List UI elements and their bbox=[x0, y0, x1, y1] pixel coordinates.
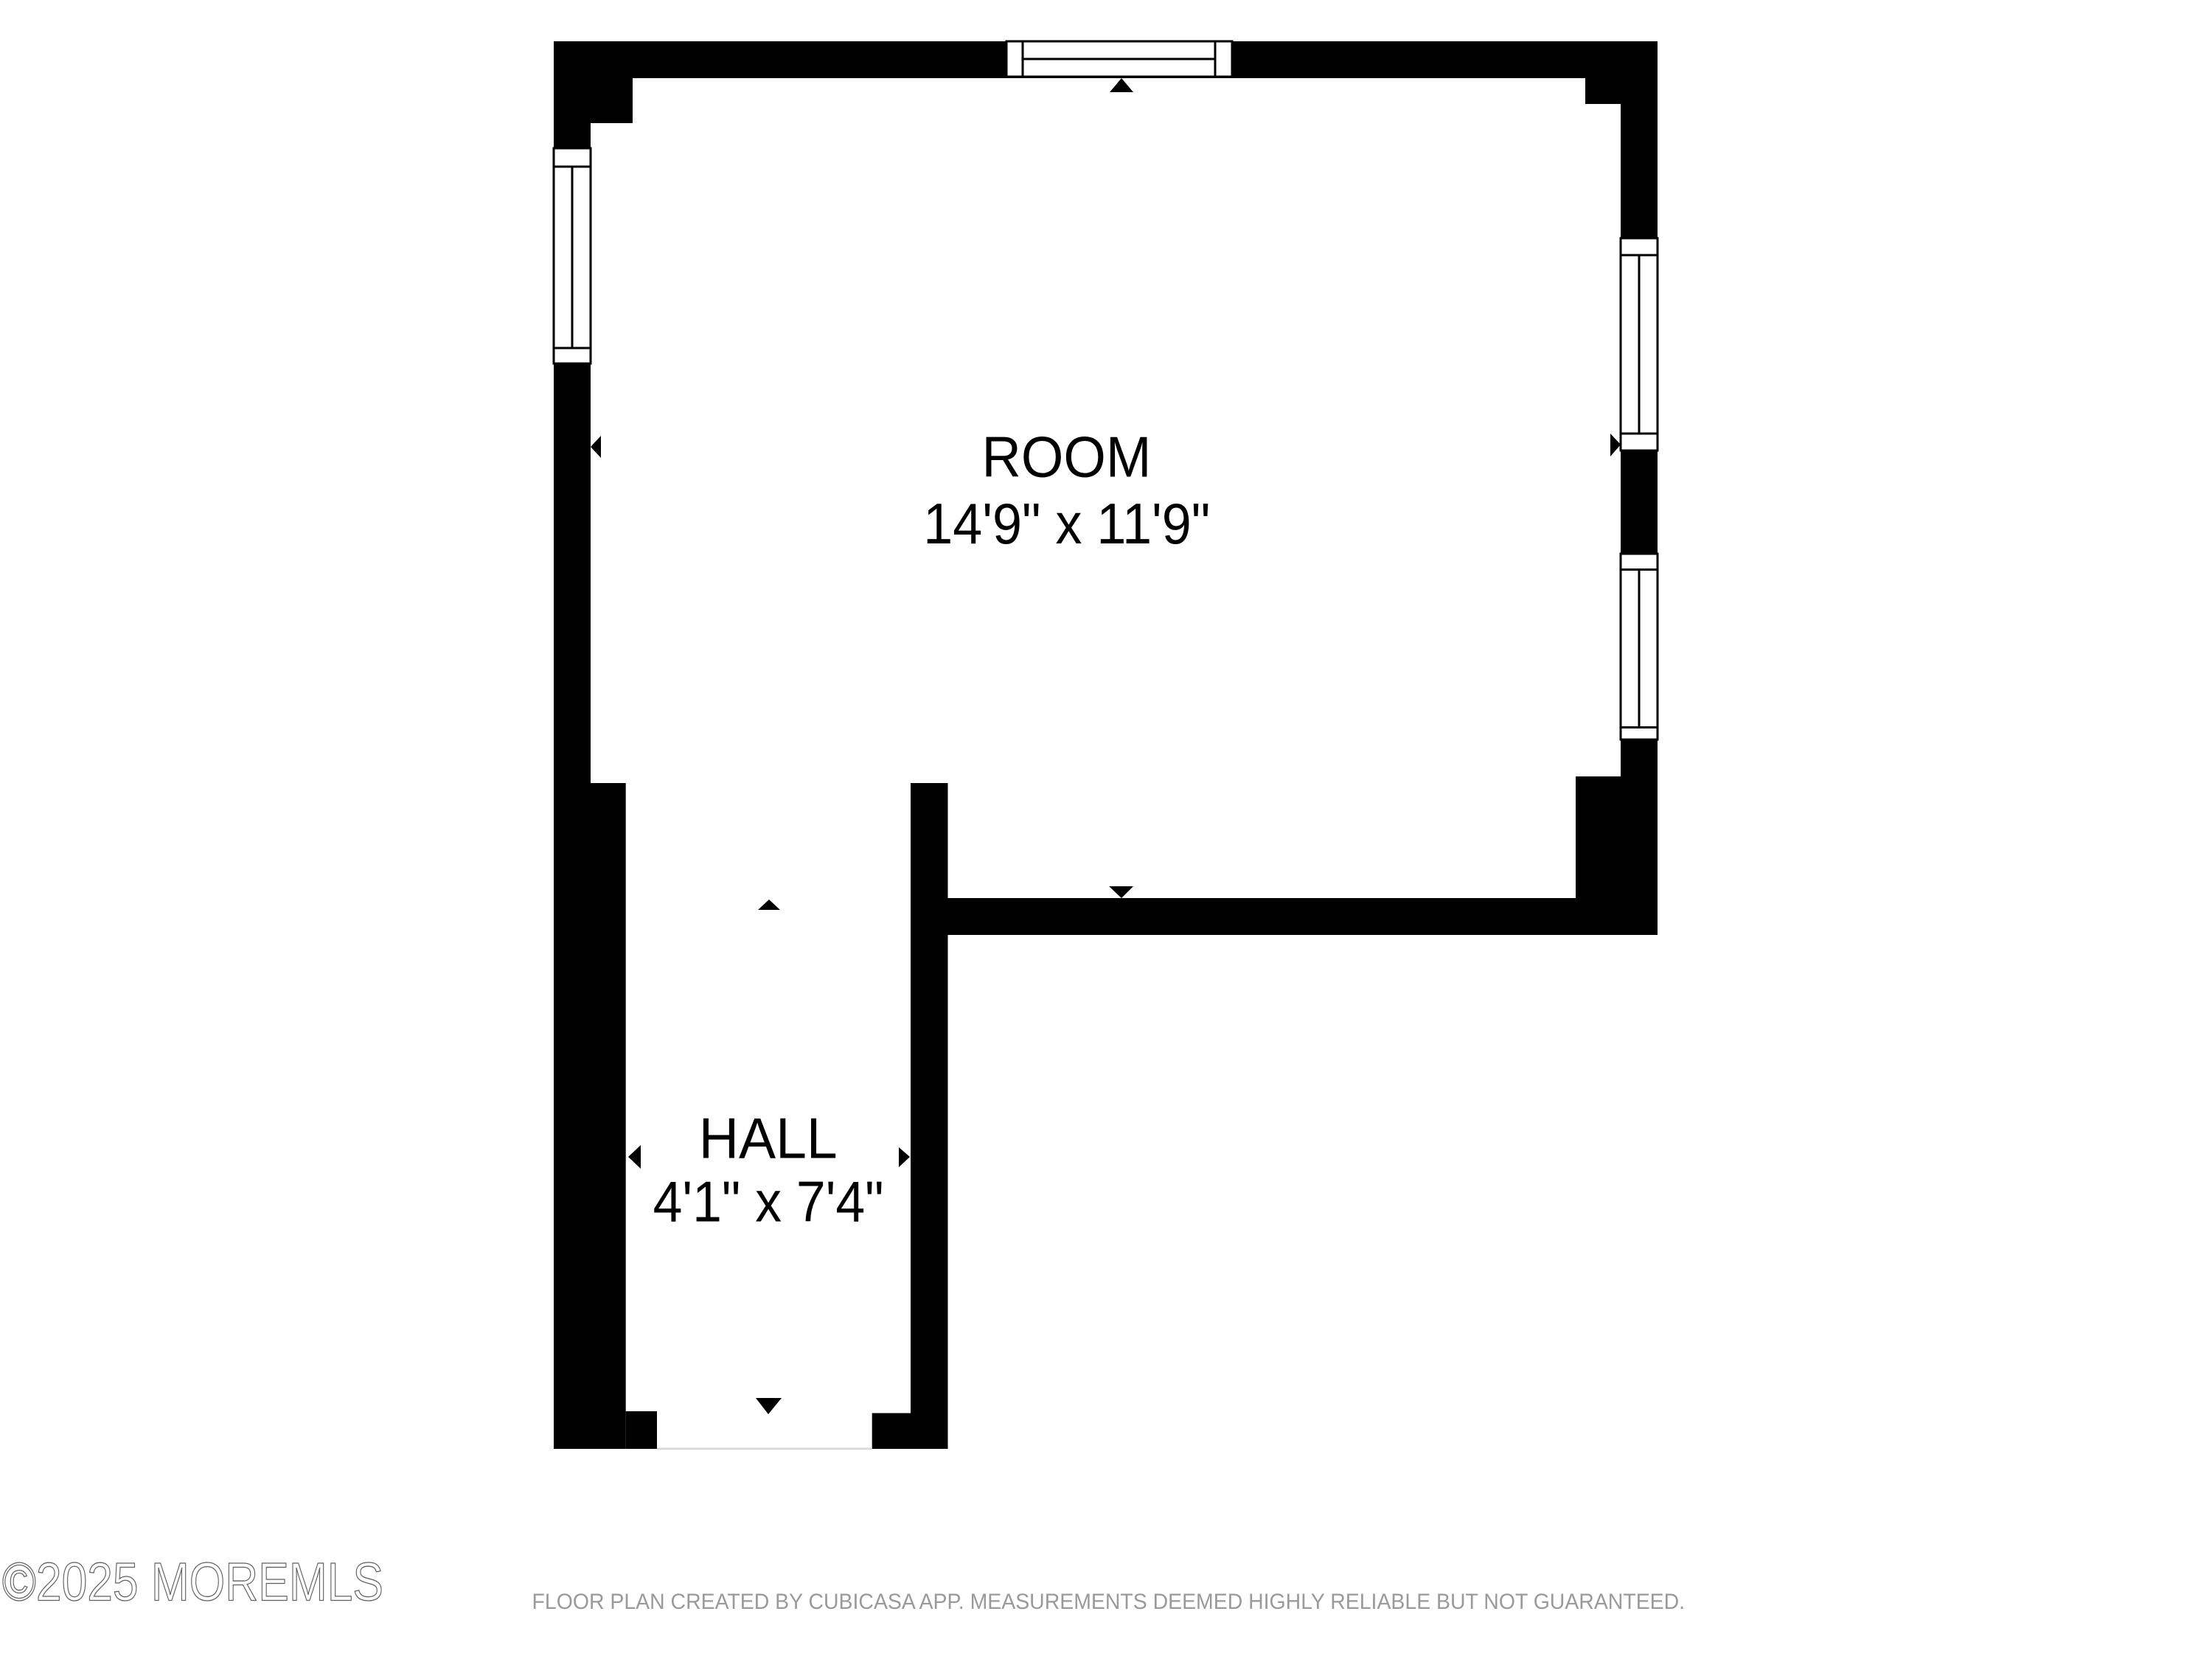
svg-text:14'9" x 11'9": 14'9" x 11'9" bbox=[923, 491, 1210, 556]
svg-text:©2025 MOREMLS: ©2025 MOREMLS bbox=[2, 1553, 383, 1613]
svg-text:ROOM: ROOM bbox=[982, 424, 1152, 489]
svg-text:4'1" x 7'4": 4'1" x 7'4" bbox=[653, 1169, 884, 1234]
svg-text:FLOOR PLAN CREATED BY CUBICASA: FLOOR PLAN CREATED BY CUBICASA APP. MEAS… bbox=[532, 1590, 1686, 1614]
svg-text:HALL: HALL bbox=[699, 1105, 838, 1170]
